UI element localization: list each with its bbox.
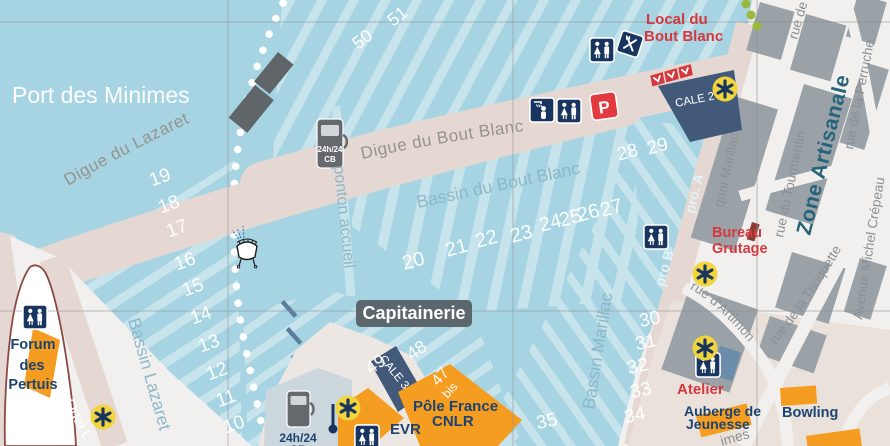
map-canvas: P 24h/24 CB 24h/24 CB Port des Minimes D… xyxy=(0,0,890,446)
evr-label: EVR xyxy=(390,421,421,438)
shower-icon xyxy=(530,98,554,122)
wc-icon xyxy=(355,425,379,446)
crane-icon xyxy=(693,336,718,361)
forum-label: Pertuis xyxy=(8,377,57,393)
capitainerie-badge: Capitainerie xyxy=(356,300,472,327)
forum-label: des xyxy=(20,358,45,374)
bureau-grutage-label: Grutage xyxy=(712,241,768,257)
wc-icon xyxy=(23,305,47,329)
capitainerie-label: Capitainerie xyxy=(362,303,465,323)
pontoon-number: 31 xyxy=(633,330,658,355)
parking-icon: P xyxy=(589,91,618,120)
crane-icon xyxy=(91,405,116,430)
pole-france-label: CNLR xyxy=(432,413,474,430)
atelier-label: Atelier xyxy=(677,381,724,398)
wc-icon xyxy=(557,99,581,123)
bowling-label: Bowling xyxy=(782,405,838,421)
fuel-label-line1: 24h/24 xyxy=(318,145,343,154)
port-des-minimes-map: P 24h/24 CB 24h/24 CB Port des Minimes D… xyxy=(0,0,890,446)
fuel-label-line2: CB xyxy=(324,155,336,164)
crane-icon xyxy=(713,77,738,102)
local-bout-blanc-label: Bout Blanc xyxy=(644,28,723,45)
wc-icon xyxy=(644,225,668,249)
auberge-label: Jeunesse xyxy=(686,416,750,432)
fuel-station-icon xyxy=(287,391,314,427)
pontoon-number: 30 xyxy=(637,307,662,332)
forum-label: Forum xyxy=(10,337,55,353)
local-bout-blanc-label: Local du xyxy=(646,11,708,28)
pontoon-number: 33 xyxy=(628,378,653,403)
pontoon-number: 32 xyxy=(625,354,650,379)
pontoon-number: 35 xyxy=(534,409,559,434)
crane-base xyxy=(329,425,338,434)
port-title: Port des Minimes xyxy=(12,82,190,108)
wc-icon xyxy=(590,38,614,62)
fuel-station-icon: 24h/24 CB xyxy=(317,119,347,168)
bureau-grutage-label: Bureau xyxy=(712,225,762,241)
crane-icon xyxy=(336,396,361,421)
bowling-building xyxy=(780,385,817,405)
